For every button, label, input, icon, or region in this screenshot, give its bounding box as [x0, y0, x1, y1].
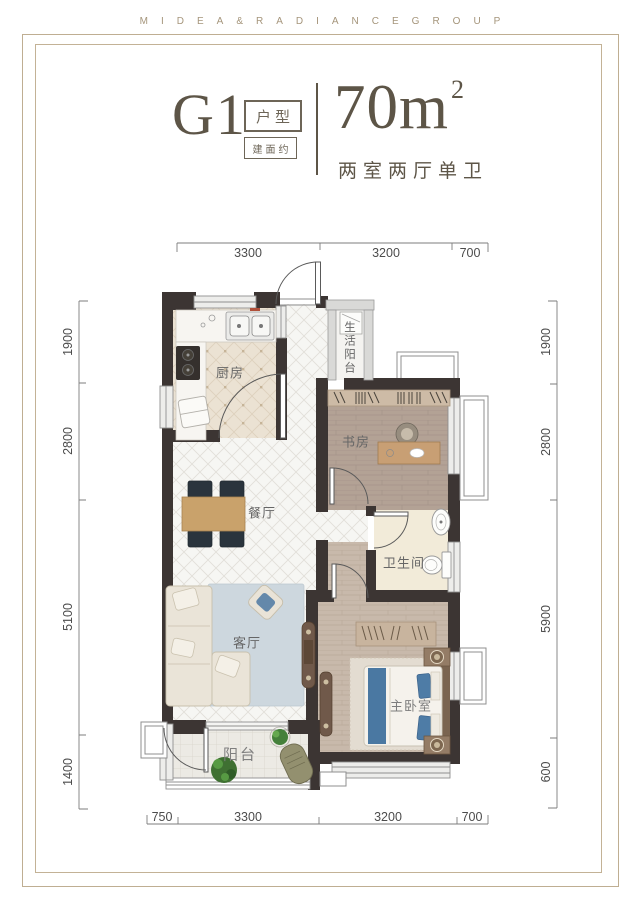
room-label-bathroom: 卫生间 — [383, 553, 425, 572]
dim-top: 3300 3200 700 — [234, 246, 480, 260]
dim-right-3: 5900 — [539, 605, 553, 633]
room-label-kitchen: 厨房 — [216, 363, 244, 382]
room-label-master-bedroom: 主卧室 — [390, 696, 432, 715]
room-label-utility-balcony: 生活阳台 — [341, 321, 357, 375]
dim-bottom: 750 3300 3200 700 — [152, 810, 483, 824]
room-label-living: 客厅 — [233, 633, 261, 652]
dim-right-2: 2800 — [539, 428, 553, 456]
toilet-tank — [442, 552, 451, 578]
dim-left: 1900 2800 5100 1400 — [61, 328, 75, 786]
wardrobe — [356, 622, 436, 646]
brochure-page: MIDEA&RADIANCEGROUP G1 户型 建面约 70m2 两室两厅单… — [0, 0, 640, 919]
dim-top-1: 3300 — [234, 246, 262, 260]
desk — [378, 442, 440, 464]
room-label-study: 书房 — [342, 432, 370, 451]
dim-bottom-1: 750 — [152, 810, 173, 824]
dim-bottom-3: 3200 — [374, 810, 402, 824]
dim-left-2: 2800 — [61, 427, 75, 455]
dim-bottom-2: 3300 — [234, 810, 262, 824]
room-label-balcony: 阳台 — [223, 744, 257, 765]
dim-top-3: 700 — [460, 246, 481, 260]
dim-right-1: 1900 — [539, 328, 553, 356]
dim-right: 1900 2800 5900 600 — [539, 328, 553, 782]
dim-left-1: 1900 — [61, 328, 75, 356]
dim-right-4: 600 — [539, 762, 553, 783]
dim-left-3: 5100 — [61, 603, 75, 631]
room-label-dining: 餐厅 — [248, 503, 276, 522]
bookshelf — [328, 390, 450, 406]
dim-bottom-4: 700 — [462, 810, 483, 824]
fridge — [178, 396, 210, 428]
dining-table — [182, 497, 245, 531]
dim-left-4: 1400 — [61, 758, 75, 786]
dim-top-2: 3200 — [372, 246, 400, 260]
entry-door — [276, 262, 321, 304]
floor-plan: 3300 3200 700 750 3300 3200 700 1900 280… — [0, 0, 640, 919]
